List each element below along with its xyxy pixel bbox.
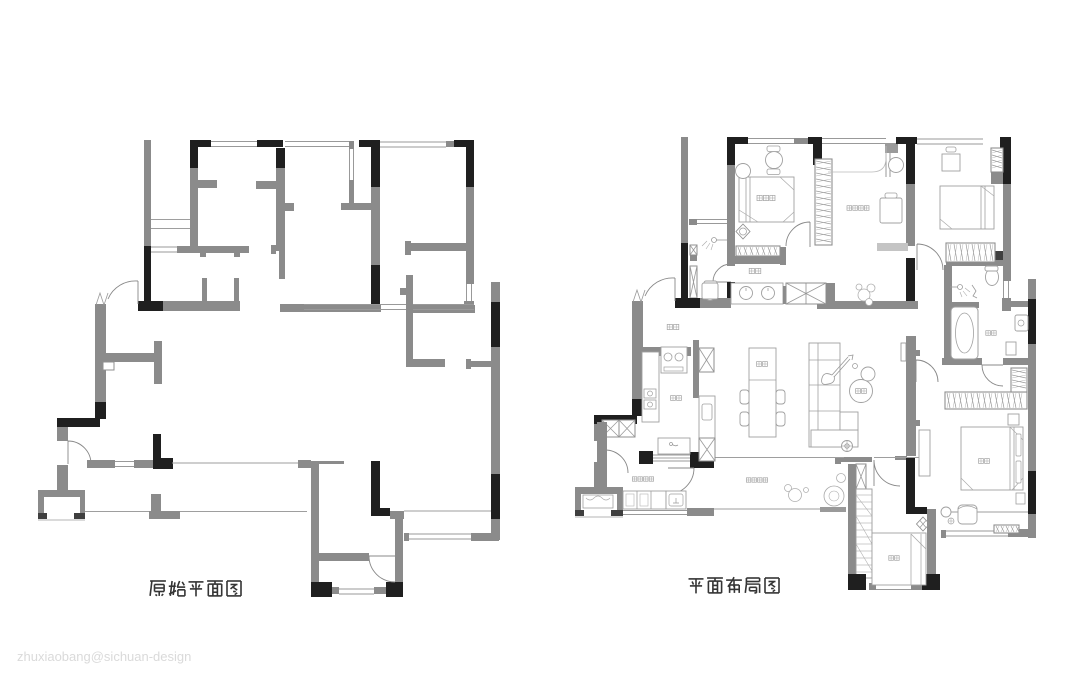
svg-text:zhuxiaobang@sichuan-design: zhuxiaobang@sichuan-design <box>17 649 191 664</box>
